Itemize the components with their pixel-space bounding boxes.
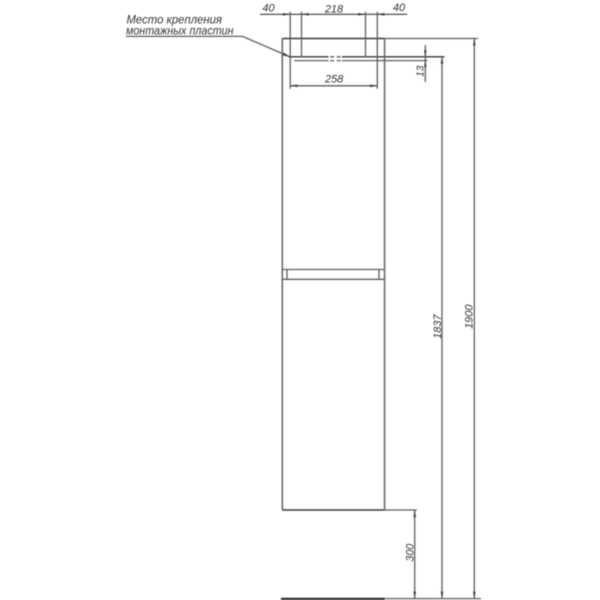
- svg-text:40: 40: [262, 2, 275, 14]
- svg-text:300: 300: [404, 544, 416, 562]
- svg-text:1900: 1900: [464, 304, 476, 329]
- svg-text:монтажных пластин: монтажных пластин: [126, 24, 234, 38]
- svg-text:218: 218: [324, 3, 344, 15]
- svg-text:13: 13: [415, 65, 426, 77]
- svg-text:258: 258: [324, 74, 344, 86]
- svg-text:1837: 1837: [432, 313, 444, 338]
- svg-text:40: 40: [393, 2, 406, 14]
